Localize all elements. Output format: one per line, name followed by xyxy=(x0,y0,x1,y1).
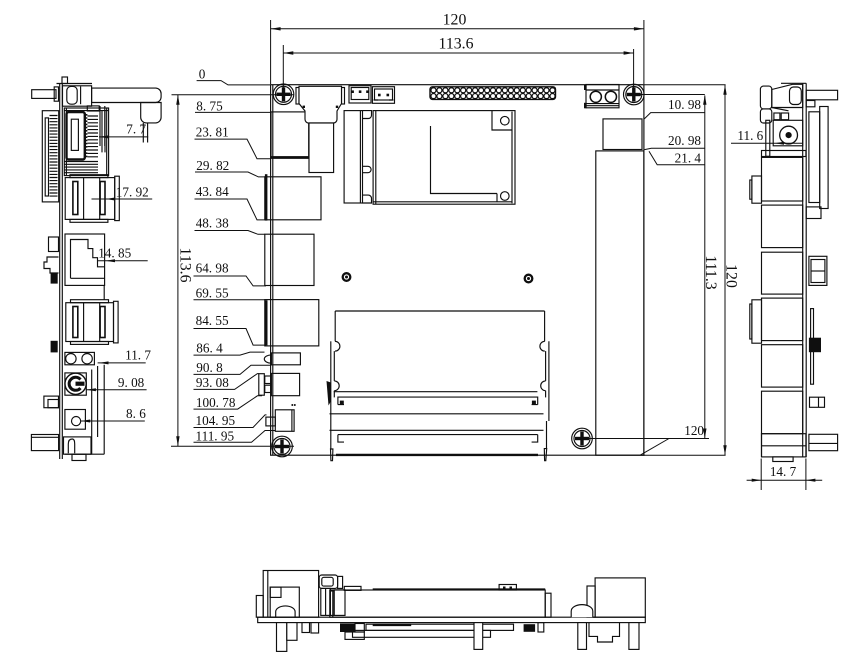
svg-text:93. 08: 93. 08 xyxy=(196,375,229,390)
svg-text:104. 95: 104. 95 xyxy=(196,413,236,428)
svg-text:11. 6: 11. 6 xyxy=(737,128,763,143)
svg-text:14. 85: 14. 85 xyxy=(98,246,131,261)
svg-text:10. 98: 10. 98 xyxy=(668,97,701,112)
svg-text:8. 6: 8. 6 xyxy=(126,406,146,421)
svg-text:120: 120 xyxy=(443,12,467,29)
svg-text:111. 95: 111. 95 xyxy=(196,428,235,443)
svg-text:69. 55: 69. 55 xyxy=(196,285,229,300)
svg-text:0: 0 xyxy=(199,66,206,81)
svg-text:21. 4: 21. 4 xyxy=(675,150,702,165)
svg-text:113.6: 113.6 xyxy=(439,36,474,53)
svg-text:43. 84: 43. 84 xyxy=(196,184,229,199)
svg-text:7. 7: 7. 7 xyxy=(126,122,146,137)
svg-text:90. 8: 90. 8 xyxy=(196,360,223,375)
svg-text:111.3: 111.3 xyxy=(702,255,719,289)
svg-text:48. 38: 48. 38 xyxy=(196,215,229,230)
svg-text:23. 81: 23. 81 xyxy=(196,124,229,139)
svg-text:11. 7: 11. 7 xyxy=(125,347,151,362)
svg-text:8. 75: 8. 75 xyxy=(196,98,223,113)
svg-text:120: 120 xyxy=(722,264,739,288)
svg-text:113.6: 113.6 xyxy=(177,248,194,283)
svg-text:86. 4: 86. 4 xyxy=(196,340,223,355)
svg-text:64. 98: 64. 98 xyxy=(196,261,229,276)
svg-text:20. 98: 20. 98 xyxy=(668,133,701,148)
svg-text:9. 08: 9. 08 xyxy=(118,375,145,390)
svg-text:17. 92: 17. 92 xyxy=(116,185,149,200)
svg-text:100. 78: 100. 78 xyxy=(196,395,236,410)
svg-text:120: 120 xyxy=(684,423,704,438)
svg-text:14. 7: 14. 7 xyxy=(770,464,797,479)
svg-text:84. 55: 84. 55 xyxy=(196,313,229,328)
svg-text:29. 82: 29. 82 xyxy=(196,158,229,173)
